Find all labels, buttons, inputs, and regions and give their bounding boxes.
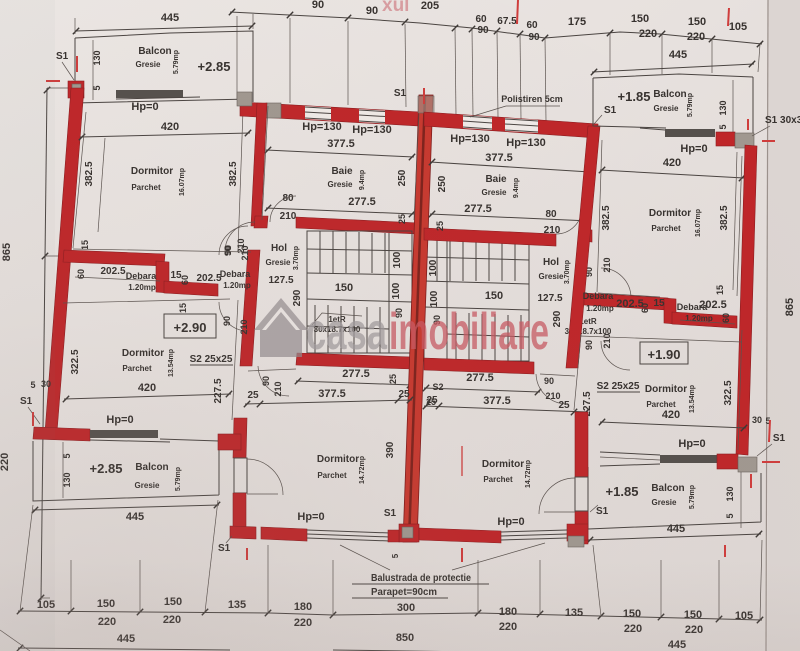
svg-text:imobiliare: imobiliare [389, 303, 549, 361]
svg-text:xul: xul [382, 0, 409, 16]
svg-text:casa: casa [306, 303, 388, 361]
